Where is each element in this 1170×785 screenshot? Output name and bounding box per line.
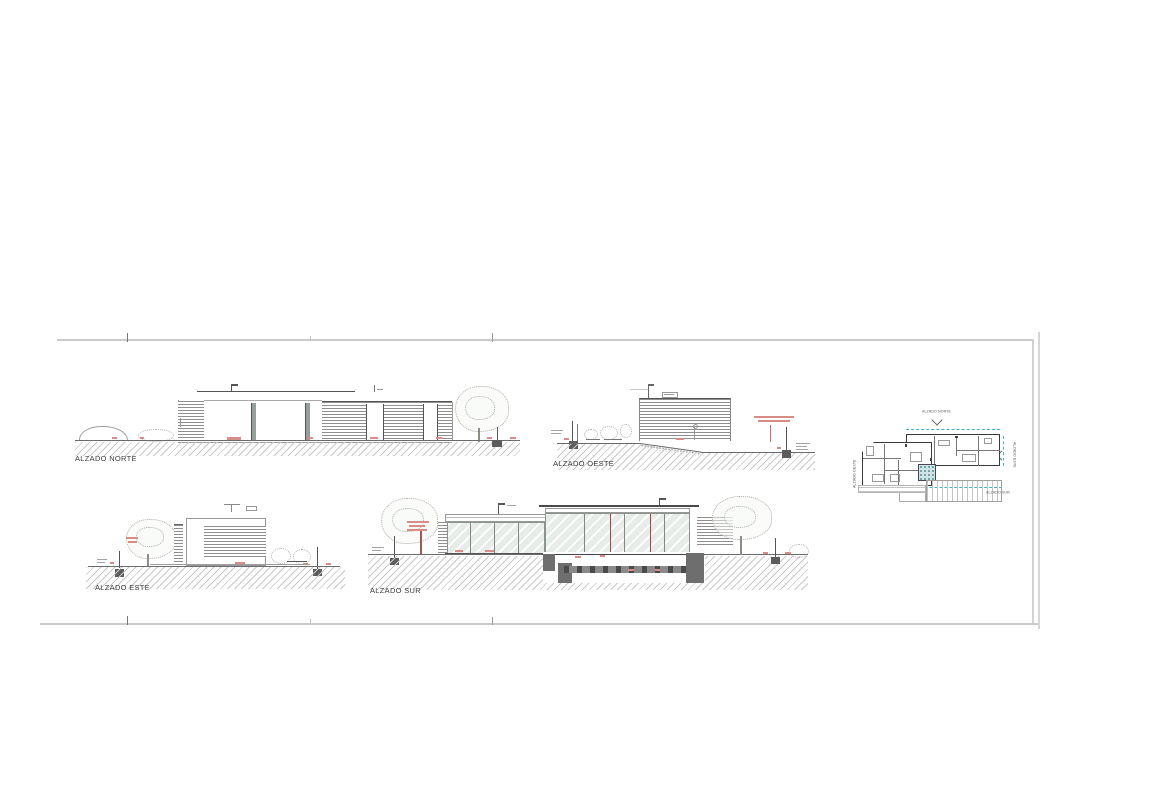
dashed-ref-line: [630, 389, 648, 390]
chimney-box-line: [664, 394, 674, 395]
chimney-flag: [498, 503, 505, 505]
plan-door-mark: [955, 436, 958, 438]
architectural-drawing-sheet: ALZADO NORTE ALZ: [0, 0, 1170, 785]
level-mark: [575, 556, 581, 558]
terrace-strip: [150, 564, 310, 565]
footing: [492, 440, 502, 447]
shrub-sketch: [293, 549, 311, 565]
level-mark: [777, 447, 781, 449]
plan-door-mark: [905, 444, 907, 447]
level-mark: [485, 550, 494, 552]
foundation-slab-line: [543, 554, 705, 555]
annotation-text-mark: [97, 559, 107, 560]
frame-bottom-line: [40, 623, 1039, 625]
trim-tick: [310, 336, 311, 341]
title-alzado-este: ALZADO ESTE: [95, 583, 150, 592]
plan-furniture: [890, 474, 900, 482]
plan-patio-step: [899, 493, 926, 502]
roof-beam-line: [446, 517, 545, 518]
car-sketch: [79, 426, 128, 441]
plan-furniture: [872, 474, 884, 482]
mullion: [494, 523, 495, 553]
level-mark: [370, 437, 378, 439]
trim-tick: [127, 333, 128, 342]
level-mark: [436, 437, 442, 439]
chimney: [498, 503, 499, 514]
annotation-text-mark: [507, 505, 516, 506]
roof-overhang-dashed: [906, 429, 1000, 430]
level-mark: [326, 563, 331, 565]
level-mark: [227, 437, 241, 440]
figure-sketch-body: [694, 427, 695, 440]
level-mark: [307, 437, 313, 439]
louver-opening: [423, 404, 438, 440]
chimney-flag: [231, 384, 238, 386]
title-alzado-oeste: ALZADO OESTE: [553, 459, 614, 468]
vent-mark: [377, 389, 383, 390]
louver-facade: [639, 398, 731, 441]
plan-furniture: [866, 446, 874, 456]
ground-hatch: [75, 442, 520, 456]
tree-canopy-inner: [136, 527, 164, 547]
wall-top-edge: [204, 400, 322, 401]
roof-overhang-dashed: [1003, 436, 1004, 466]
red-leader-line: [770, 425, 771, 442]
foundation-pier: [686, 553, 704, 583]
plan-furniture: [962, 454, 976, 462]
window-slot: [251, 403, 256, 440]
red-annotation-text: [409, 525, 425, 527]
red-annotation-text: [407, 521, 429, 523]
footing: [782, 450, 791, 458]
level-mark: [112, 437, 117, 439]
vent-mark: [231, 504, 232, 512]
red-annotation-text: [754, 416, 794, 418]
title-alzado-sur: ALZADO SUR: [370, 586, 421, 595]
shrub-sketch: [789, 544, 809, 558]
annotation-text-mark: [796, 443, 810, 444]
plan-partition: [934, 436, 935, 466]
title-alzado-norte: ALZADO NORTE: [75, 454, 137, 463]
planter-line: [586, 439, 600, 440]
wall-right-edge: [452, 402, 453, 440]
annotation-text-mark: [551, 433, 561, 434]
roof-line: [539, 505, 699, 507]
louver-strip: [174, 524, 183, 564]
antenna: [648, 384, 649, 398]
level-mark: [110, 562, 114, 564]
louver-band: [204, 526, 266, 557]
level-mark: [763, 552, 768, 554]
foundation-pier: [543, 554, 555, 571]
plan-label-south: ALZADO SUR: [986, 491, 1010, 495]
mullion: [584, 514, 585, 552]
trim-tick: [127, 616, 128, 625]
fence-post: [775, 538, 776, 557]
level-mark: [140, 437, 144, 439]
antenna-flag: [648, 384, 654, 386]
glass-wall-large: [545, 513, 690, 553]
frame-right-outer-line: [1038, 332, 1040, 629]
annotation-text-mark: [97, 562, 105, 563]
annotation-text-mark: [551, 430, 563, 431]
plan-label-east: ALZADO ESTE: [1013, 442, 1017, 468]
red-annotation-text: [407, 529, 427, 531]
vent-mark: [374, 385, 375, 392]
planter-line: [604, 439, 622, 440]
level-mark: [628, 569, 634, 571]
plan-partition: [978, 436, 979, 466]
tree-trunk-red: [420, 531, 422, 555]
plan-partition: [956, 436, 957, 456]
pole: [497, 427, 498, 441]
louver-strip: [438, 522, 447, 554]
annotation-text-mark: [796, 446, 807, 447]
plan-partition: [884, 444, 885, 484]
louver-panel: [178, 401, 204, 440]
level-mark: [564, 438, 569, 440]
red-annotation-text: [128, 541, 137, 543]
annotation-text-mark: [796, 449, 808, 450]
frame-top-line: [57, 339, 1033, 341]
pole: [180, 418, 181, 427]
trim-tick: [492, 617, 493, 625]
plan-furniture: [938, 440, 950, 446]
mullion: [470, 523, 471, 553]
plan-partition: [863, 458, 901, 459]
level-mark: [487, 437, 492, 439]
mullion: [664, 514, 665, 552]
plan-pool: [918, 464, 936, 481]
plan-furniture: [910, 452, 922, 462]
tree-trunk: [740, 536, 742, 555]
louver-opening: [366, 404, 384, 440]
north-arrow-icon: [931, 414, 942, 425]
level-mark: [600, 555, 605, 557]
level-mark: [676, 438, 684, 440]
roof-beam: [445, 514, 546, 522]
red-annotation-text: [126, 537, 138, 539]
plan-partition: [956, 450, 1000, 451]
vent-mark: [224, 504, 240, 505]
plan-label-west: ALZADO OESTE: [853, 459, 857, 488]
mullion: [518, 523, 519, 553]
shrub-sketch: [600, 426, 618, 440]
level-mark: [455, 550, 463, 552]
plan-door-mark: [930, 458, 932, 461]
red-annotation-text: [758, 420, 790, 422]
level-mark: [655, 569, 660, 571]
footing: [771, 557, 780, 564]
fence-post: [786, 427, 787, 450]
trim-tick: [492, 333, 493, 342]
bench-line: [287, 561, 307, 562]
chimney-flag: [659, 498, 666, 500]
level-mark: [510, 437, 516, 439]
tree-canopy-inner: [465, 396, 495, 420]
tree-canopy-inner: [724, 506, 756, 528]
window-slot: [305, 403, 310, 440]
roof-line: [197, 391, 355, 392]
steel-column: [610, 514, 611, 552]
annotation-text-mark: [372, 547, 384, 548]
rooflight-box: [246, 506, 257, 511]
steel-column: [650, 514, 651, 552]
frame-right-inner-line: [1032, 339, 1034, 624]
sapling-sketch: [620, 424, 632, 438]
trim-tick: [310, 619, 311, 624]
annotation-text-mark: [372, 550, 381, 551]
plan-furniture: [984, 438, 992, 444]
mullion: [624, 514, 625, 552]
plan-terrace-strip: [858, 485, 926, 493]
chimney: [231, 385, 232, 392]
